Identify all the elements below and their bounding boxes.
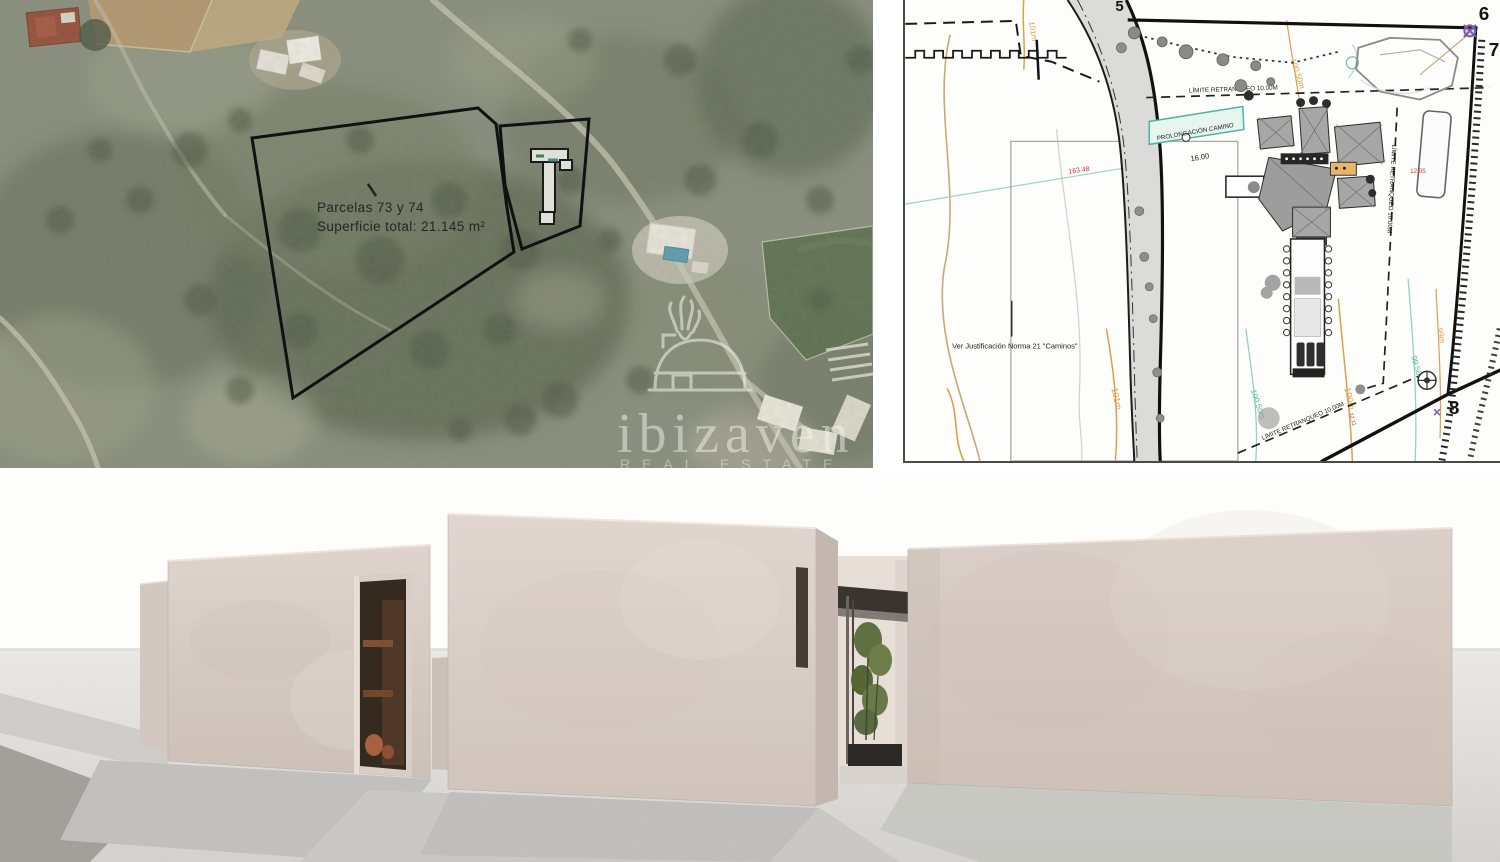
pergola-post-1: [846, 596, 849, 764]
planter-box: [848, 744, 902, 766]
corner-number-8: 8: [1449, 398, 1460, 419]
aerial-photo-panel: Parcelas 73 y 74 Superficie total: 21.14…: [0, 0, 873, 468]
entrance-passage: [838, 556, 908, 784]
sun-loungers: [1297, 343, 1325, 367]
window-shelf-2: [363, 690, 393, 697]
house-box-central: [448, 514, 838, 806]
property-composite: Parcelas 73 y 74 Superficie total: 21.14…: [0, 0, 1500, 862]
house-box-left: [168, 545, 430, 778]
survey-marker-purple-6: [1464, 25, 1476, 37]
corner-number-5: 5: [1115, 0, 1123, 15]
house-box-sliver: [140, 581, 168, 753]
terracotta-pot: [365, 734, 383, 756]
note-caminos: Ver Justificación Norma 21 "Caminos": [952, 341, 1078, 350]
site-plan-panel: 101m 101m 100.50m 100.50m 100m 99.50m 99…: [903, 0, 1500, 463]
window-frame-edge: [354, 576, 359, 774]
setback-end-tree: [1355, 384, 1365, 394]
gap-wall: [432, 657, 450, 770]
parcel-annotation-line1: Parcelas 73 y 74: [317, 200, 424, 215]
box-central-side-face: [816, 528, 838, 806]
window-slot-left: [354, 573, 412, 777]
plan-background: [905, 0, 1499, 461]
corner-number-7: 7: [1489, 40, 1500, 61]
site-plan-drawing: 101m 101m 100.50m 100.50m 100m 99.50m 99…: [905, 0, 1500, 461]
render-3d-panel: [0, 478, 1500, 862]
render-3d: [0, 478, 1500, 862]
window-slot-central: [796, 567, 808, 668]
aerial-photo: Parcelas 73 y 74 Superficie total: 21.14…: [0, 0, 873, 468]
watermark-tagline-text: REAL ESTATE: [620, 456, 844, 468]
pool-dim-label: 12.05: [1410, 168, 1426, 175]
parcel-annotation-line2: Superficie total: 21.145 m²: [317, 219, 485, 234]
survey-point: [1418, 371, 1436, 389]
bench-strip: [1293, 368, 1325, 377]
corner-number-6: 6: [1479, 4, 1490, 25]
window-shelf-1: [363, 640, 393, 647]
passage-gravel: [840, 766, 908, 784]
window-wood-panel: [382, 600, 404, 765]
photo-grain: [0, 0, 873, 468]
house-box-right: [908, 510, 1452, 806]
gray-tree: [1248, 181, 1260, 193]
